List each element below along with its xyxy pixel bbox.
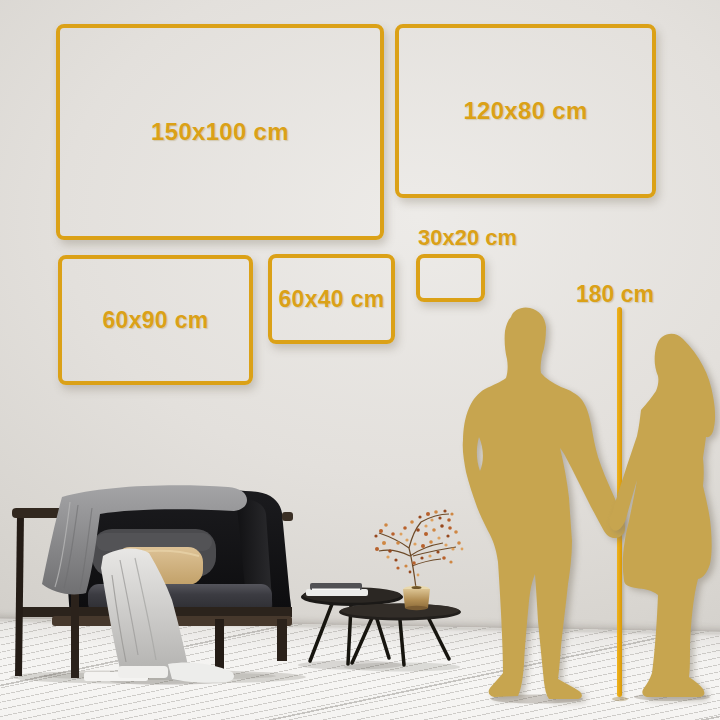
coffee-tables (301, 583, 461, 665)
floor-shadows (10, 661, 710, 704)
plant-blossoms (374, 509, 463, 576)
man-silhouette (463, 307, 625, 699)
size-comparison-scene: 150x100 cm 120x80 cm 60x90 cm 60x40 cm 3… (0, 0, 720, 720)
sofa (12, 485, 293, 682)
woman-silhouette (609, 334, 715, 697)
books-on-table (306, 583, 368, 596)
scene-graphics (0, 0, 720, 720)
